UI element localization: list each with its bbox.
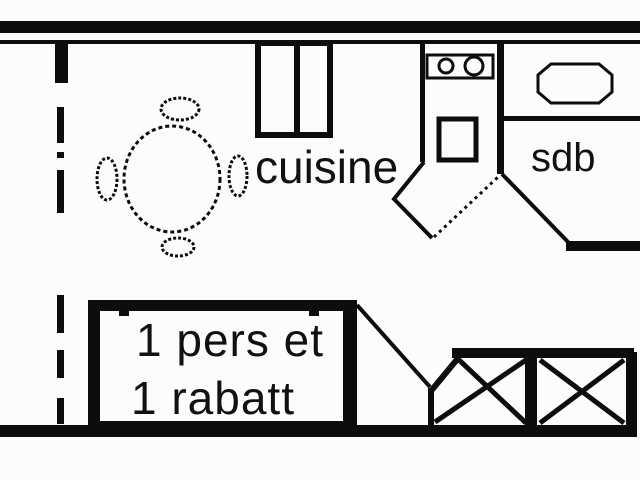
dash-segment [57,350,64,378]
wardrobe-right-wall [626,352,637,429]
bathroom-door-swing [502,174,569,243]
balcony-dashed-wall [57,107,64,424]
wardrobe-chamfer [431,357,459,391]
bathroom-counter-line [500,116,640,121]
kitchen-left-wall [420,43,425,162]
wardrobe-top-bar [452,348,634,358]
kitchen-door-swing [394,162,432,238]
dash-segment [57,170,64,213]
bed-frame-tick-left [119,311,129,316]
kitchen-label: cuisine [255,141,398,193]
floorplan-canvas: cuisine sdb 1 pers et 1 rabatt [0,0,640,480]
entry-wall-stub [55,43,68,83]
bed-label-line2: 1 rabatt [131,372,295,424]
dining-table [124,126,220,232]
dash-segment [57,398,64,424]
kitchen-bathroom-wall [497,43,504,174]
dash-segment [57,295,64,333]
chair-left [97,158,117,200]
burner-left [439,59,453,73]
bathroom-washbasin [538,64,612,103]
dash-segment [57,152,64,158]
chair-bottom [162,238,194,256]
wardrobe-left-wall [428,388,434,425]
dash-segment [57,107,64,143]
chair-right [229,156,247,196]
bed-door-swing [357,305,430,387]
wardrobe-right-cross [540,360,624,423]
bathroom-bottom-wall [566,241,640,251]
bathroom-label: sdb [531,136,596,180]
burner-right [465,57,483,75]
chair-top [161,98,199,120]
top-wall [0,21,640,33]
bed-label-line1: 1 pers et [136,314,324,366]
floorplan: cuisine sdb 1 pers et 1 rabatt [0,0,640,480]
wardrobe-divider [525,352,537,429]
kitchen-door-swing-dotted [434,177,498,237]
kitchen-sink [439,119,476,160]
